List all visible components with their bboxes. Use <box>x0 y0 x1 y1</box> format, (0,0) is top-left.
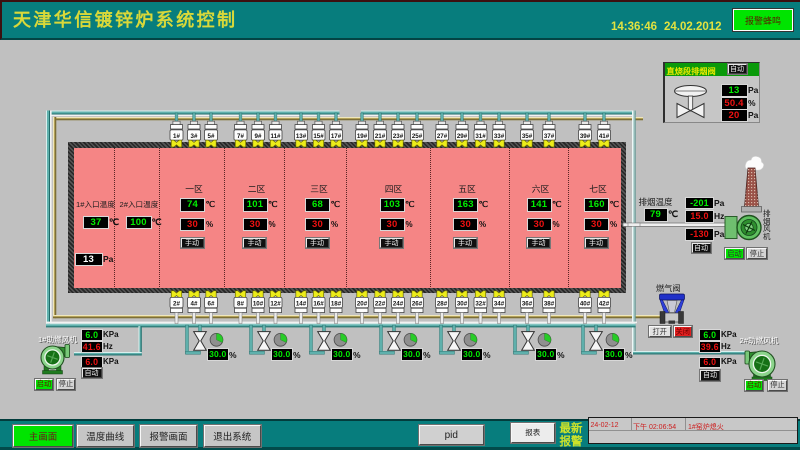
svg-text:37#: 37# <box>544 133 555 140</box>
svg-text:29#: 29# <box>457 133 468 140</box>
svg-text:24#: 24# <box>393 300 404 307</box>
svg-text:38#: 38# <box>544 300 555 307</box>
svg-text:31#: 31# <box>475 133 486 140</box>
svg-text:28#: 28# <box>437 300 448 307</box>
svg-text:13#: 13# <box>296 133 307 140</box>
svg-text:3#: 3# <box>191 133 198 140</box>
svg-text:21#: 21# <box>375 133 386 140</box>
svg-text:26#: 26# <box>412 300 423 307</box>
svg-text:15#: 15# <box>313 133 324 140</box>
svg-text:33#: 33# <box>494 133 505 140</box>
svg-text:12#: 12# <box>270 300 281 307</box>
svg-text:9#: 9# <box>255 133 262 140</box>
svg-text:1#: 1# <box>173 133 180 140</box>
svg-text:32#: 32# <box>475 300 486 307</box>
svg-text:42#: 42# <box>599 300 610 307</box>
svg-text:8#: 8# <box>237 300 244 307</box>
svg-text:36#: 36# <box>522 300 533 307</box>
svg-text:41#: 41# <box>599 133 610 140</box>
svg-text:30#: 30# <box>457 300 468 307</box>
svg-text:22#: 22# <box>375 300 386 307</box>
svg-text:16#: 16# <box>313 300 324 307</box>
svg-text:6#: 6# <box>208 300 215 307</box>
svg-text:25#: 25# <box>412 133 423 140</box>
svg-text:39#: 39# <box>580 133 591 140</box>
svg-text:17#: 17# <box>331 133 342 140</box>
svg-text:11#: 11# <box>271 133 282 140</box>
svg-text:19#: 19# <box>357 133 368 140</box>
svg-text:2#: 2# <box>173 300 180 307</box>
svg-text:35#: 35# <box>522 133 533 140</box>
svg-text:34#: 34# <box>494 300 505 307</box>
svg-text:23#: 23# <box>393 133 404 140</box>
svg-text:27#: 27# <box>437 133 448 140</box>
svg-text:20#: 20# <box>357 300 368 307</box>
svg-text:14#: 14# <box>296 300 307 307</box>
svg-text:10#: 10# <box>253 300 264 307</box>
svg-text:18#: 18# <box>331 300 342 307</box>
svg-text:7#: 7# <box>237 133 244 140</box>
svg-text:4#: 4# <box>191 300 198 307</box>
svg-text:40#: 40# <box>580 300 591 307</box>
svg-text:5#: 5# <box>208 133 215 140</box>
